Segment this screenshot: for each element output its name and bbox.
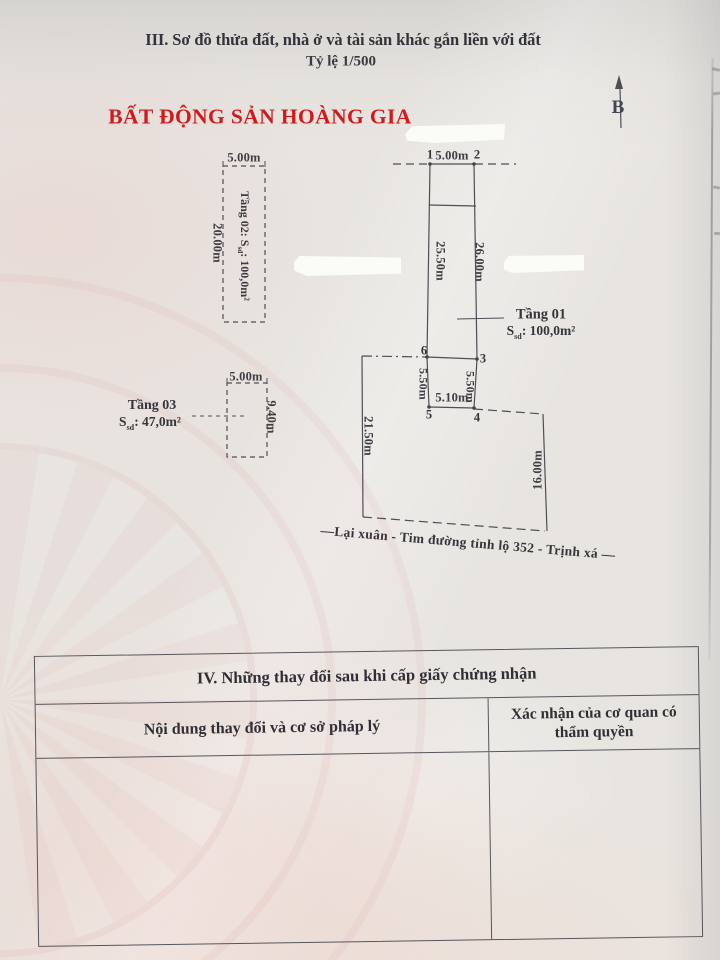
floor3-title: Tầng 03 bbox=[128, 398, 177, 414]
whiteout-patch bbox=[294, 256, 401, 276]
floor3-height-dim: 9.40m bbox=[264, 400, 279, 433]
floor1-title: Tầng 01 bbox=[516, 307, 566, 324]
floor3-area: Ssd: 47,0m² bbox=[119, 414, 181, 432]
north-label: B bbox=[612, 97, 625, 119]
body-cell-content bbox=[36, 752, 492, 946]
point-3: 3 bbox=[480, 352, 486, 367]
point-1: 1 bbox=[427, 148, 433, 163]
floor1-area: Ssd: 100,0m² bbox=[507, 323, 576, 341]
whiteout-patch bbox=[405, 124, 505, 143]
whiteout-patch bbox=[504, 255, 584, 273]
parcel-boundary bbox=[362, 356, 547, 531]
col-header-content: Nội dung thay đổi và cơ sở pháp lý bbox=[36, 698, 490, 758]
changes-table-body-row bbox=[36, 749, 702, 946]
parcel-left-dim: 21.50m bbox=[361, 416, 376, 456]
right-depth-dim: 26.00m bbox=[472, 242, 487, 282]
point-4: 4 bbox=[474, 411, 480, 426]
page-edge-mark bbox=[714, 232, 720, 235]
floor2-height-dim: 20.00m bbox=[210, 223, 225, 263]
floor2-label: Tầng 02: Ssd: 100,0m² bbox=[236, 191, 252, 301]
certificate-page: III. Sơ đồ thửa đất, nhà ở và tài sản kh… bbox=[0, 0, 720, 960]
left-depth-dim: 25.50m bbox=[433, 241, 448, 281]
point-5: 5 bbox=[426, 408, 432, 423]
point-6: 6 bbox=[421, 344, 427, 359]
changes-table: IV. Những thay đổi sau khi cấp giấy chứn… bbox=[34, 646, 703, 947]
frontage-dim: 5.00m bbox=[435, 149, 468, 164]
bottom-width-dim: 5.10m bbox=[435, 391, 468, 406]
body-cell-confirmation bbox=[489, 749, 702, 939]
floor2-width-dim: 5.00m bbox=[227, 151, 260, 166]
floor3-rect bbox=[227, 383, 267, 457]
floor1-leader bbox=[457, 318, 504, 319]
changes-table-header-row: Nội dung thay đổi và cơ sở pháp lý Xác n… bbox=[36, 695, 700, 759]
left-step-dim: 5.50m bbox=[416, 368, 431, 400]
parcel-right-dim: 16.00m bbox=[531, 450, 546, 490]
col-header-confirmation: Xác nhận của cơ quan có thẩm quyền bbox=[489, 695, 700, 751]
point-2: 2 bbox=[474, 148, 480, 163]
floor3-width-dim: 5.00m bbox=[229, 370, 262, 385]
